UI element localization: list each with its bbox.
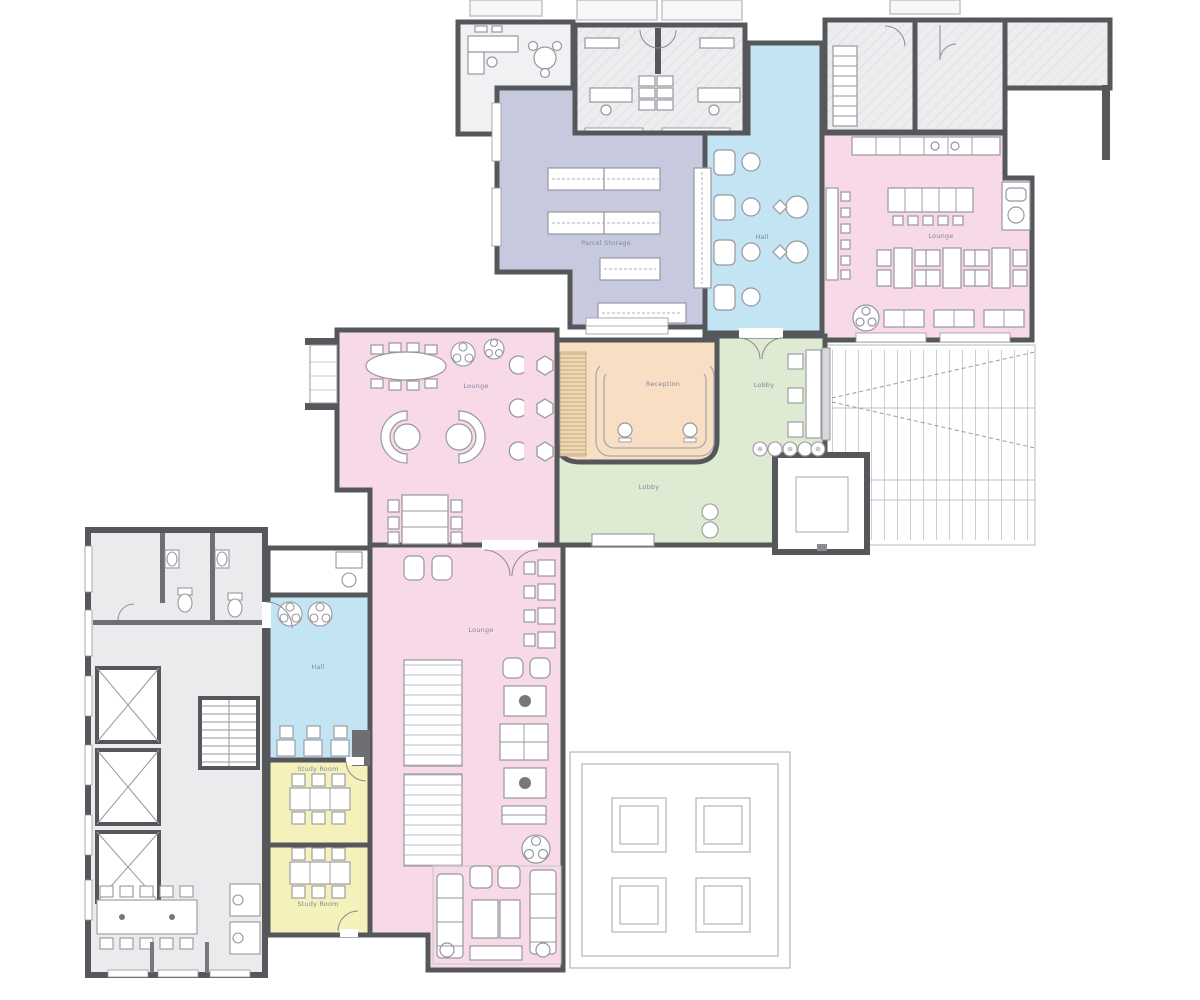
coworking-table	[97, 886, 197, 949]
banquet-tables	[404, 660, 462, 866]
office-divider-wall	[655, 28, 661, 74]
label-parcel-storage: Parcel Storage	[581, 239, 631, 247]
lobby-sofa	[788, 348, 830, 440]
label-hall-upper: Hall	[755, 233, 768, 241]
reception-chair	[618, 423, 632, 437]
reception-desk-opening	[600, 356, 710, 374]
hatched-room-far-right	[1005, 20, 1110, 160]
label-study-room-1: Study Room	[297, 765, 338, 773]
reception-chair	[683, 423, 697, 437]
building-stair	[200, 698, 258, 768]
wall-stub	[1102, 85, 1110, 160]
label-study-room-2: Study Room	[297, 900, 338, 908]
skylight-grid	[570, 752, 790, 968]
label-lounge-lower: Lounge	[468, 626, 493, 634]
floorplan-page: Parcel Storage Hall Lounge Lounge Recept…	[0, 0, 1200, 1000]
hatched-room-a	[825, 20, 915, 132]
lounge-middle-long-table	[388, 495, 462, 544]
floorplan-svg: Parcel Storage Hall Lounge Lounge Recept…	[0, 0, 1200, 1000]
lift-core-room	[775, 455, 867, 552]
label-reception: Reception	[646, 380, 680, 388]
label-lobby-lower: Lobby	[639, 483, 660, 491]
room-lounge-upper	[822, 133, 1032, 340]
label-hall-lower: Hall	[311, 663, 324, 671]
office-rooms-top-middle	[575, 25, 745, 136]
entry-ramp	[560, 352, 586, 456]
hatched-room-b	[915, 20, 1005, 132]
lounge-middle-bay-window	[305, 338, 339, 410]
label-lounge-upper: Lounge	[928, 232, 953, 240]
lounge-upper-dining-sets	[877, 248, 1027, 288]
label-lounge-middle: Lounge	[463, 382, 488, 390]
label-lobby-upper: Lobby	[754, 381, 775, 389]
study-room-2-furniture	[290, 848, 350, 898]
existing-building	[85, 530, 265, 977]
study-room-1-furniture	[290, 774, 350, 824]
partial-room-outlines	[470, 0, 960, 20]
